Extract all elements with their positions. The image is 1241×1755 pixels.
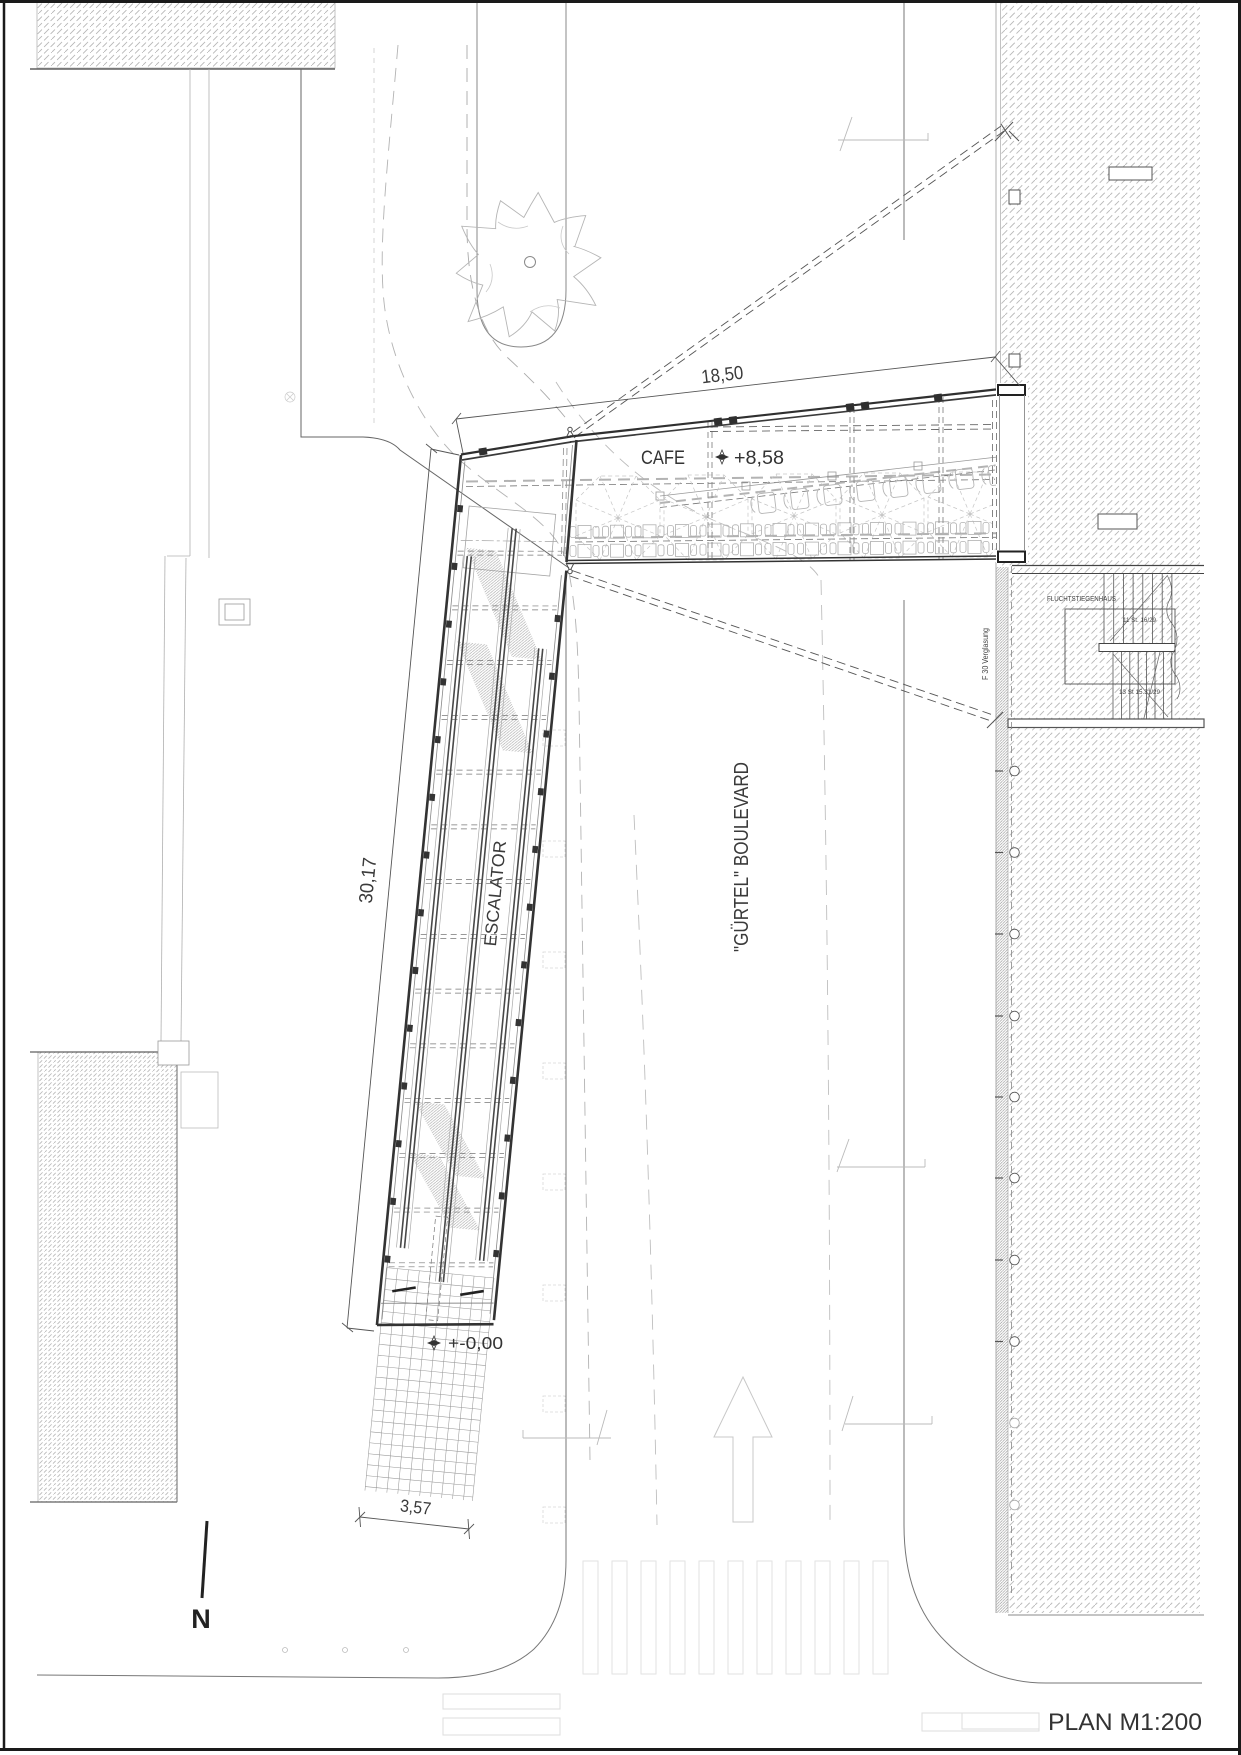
svg-text:F 30 Verglasung: F 30 Verglasung bbox=[981, 628, 990, 680]
svg-text:"GÜRTEL" BOULEVARD: "GÜRTEL" BOULEVARD bbox=[731, 762, 753, 952]
svg-text:FLUCHTSTIEGENHAUS: FLUCHTSTIEGENHAUS bbox=[1047, 596, 1116, 603]
svg-text:3,57: 3,57 bbox=[399, 1495, 432, 1518]
svg-text:CAFE: CAFE bbox=[641, 448, 685, 469]
svg-text:N: N bbox=[191, 1604, 211, 1634]
svg-text:13 St 15.31/29: 13 St 15.31/29 bbox=[1119, 690, 1161, 696]
svg-text:11 St. 16/29: 11 St. 16/29 bbox=[1123, 618, 1157, 624]
svg-text:30,17: 30,17 bbox=[356, 857, 381, 905]
svg-text:+8,58: +8,58 bbox=[734, 448, 784, 469]
svg-text:PLAN M1:200: PLAN M1:200 bbox=[1048, 1709, 1202, 1736]
svg-text:+-0,00: +-0,00 bbox=[448, 1333, 503, 1353]
